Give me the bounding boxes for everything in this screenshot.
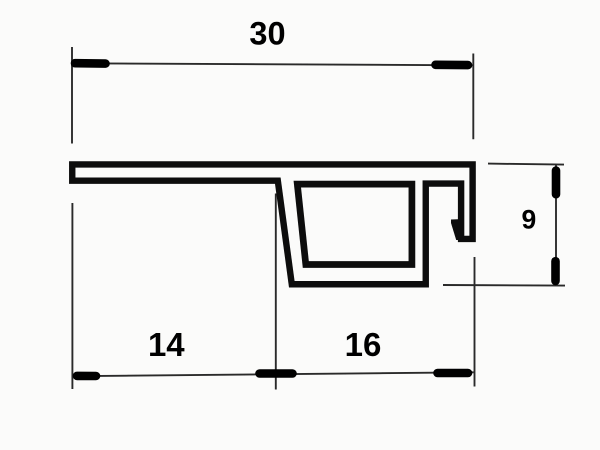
svg-text:16: 16 xyxy=(345,326,382,363)
svg-text:30: 30 xyxy=(249,16,285,52)
svg-text:9: 9 xyxy=(522,204,537,234)
svg-text:14: 14 xyxy=(148,326,185,363)
